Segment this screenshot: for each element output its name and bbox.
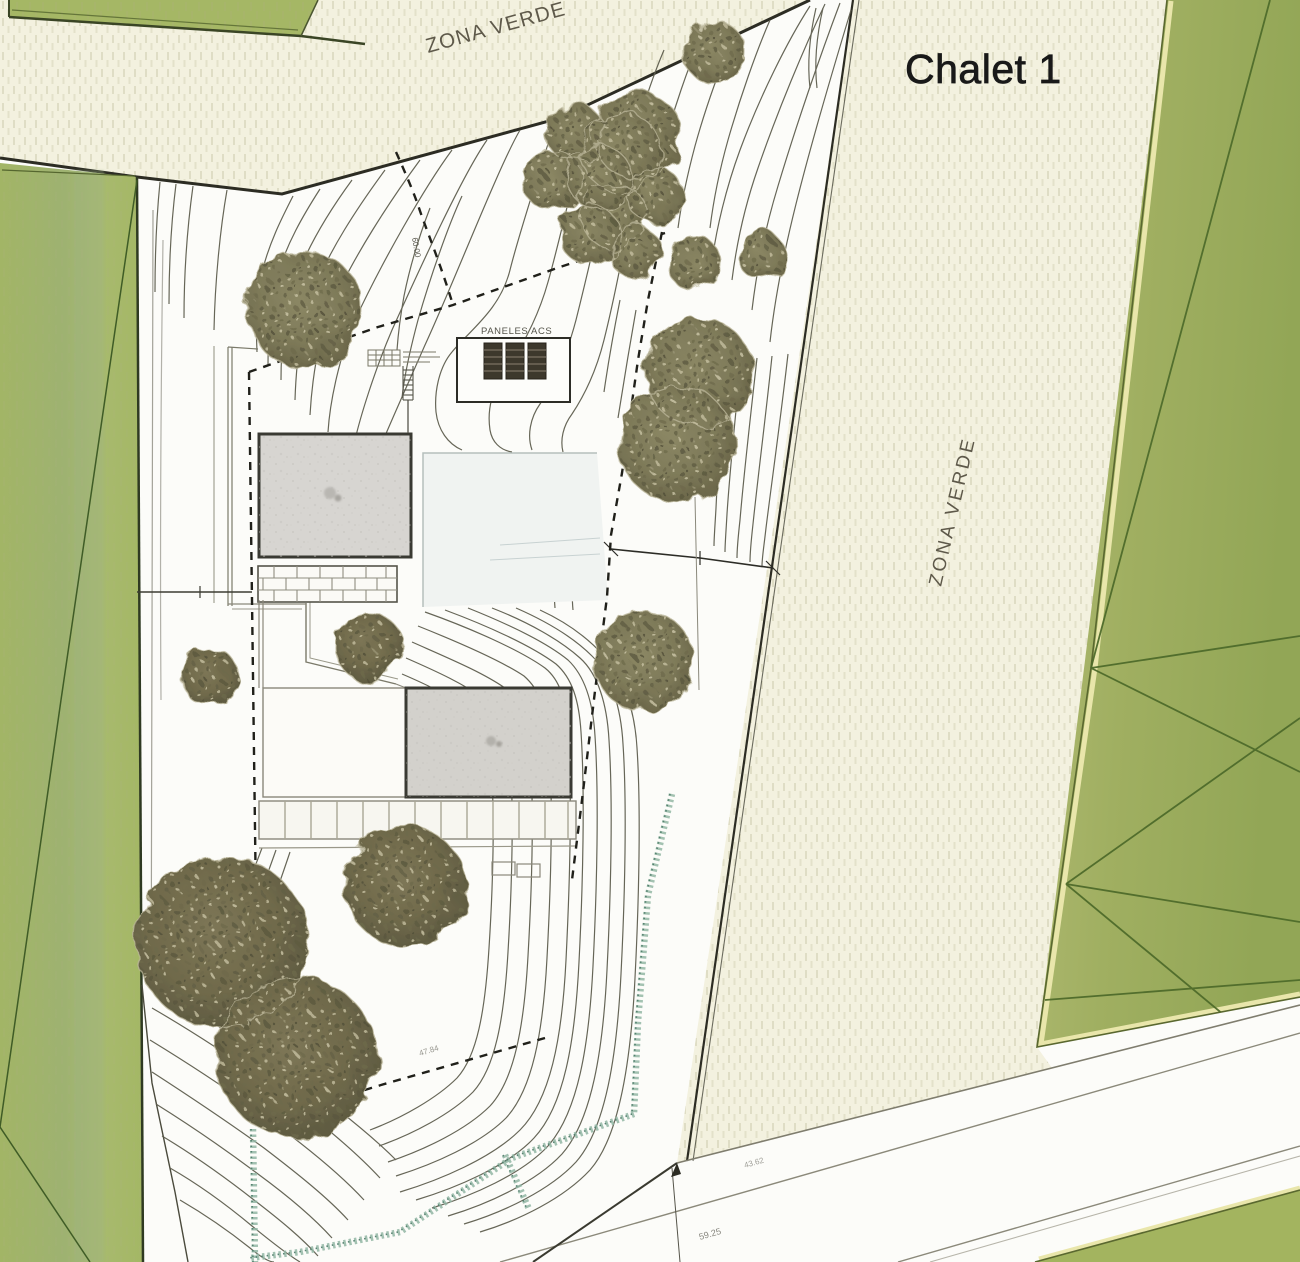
svg-text:Chalet 1: Chalet 1 (905, 46, 1062, 92)
svg-text:PANELES ACS: PANELES ACS (481, 326, 552, 337)
